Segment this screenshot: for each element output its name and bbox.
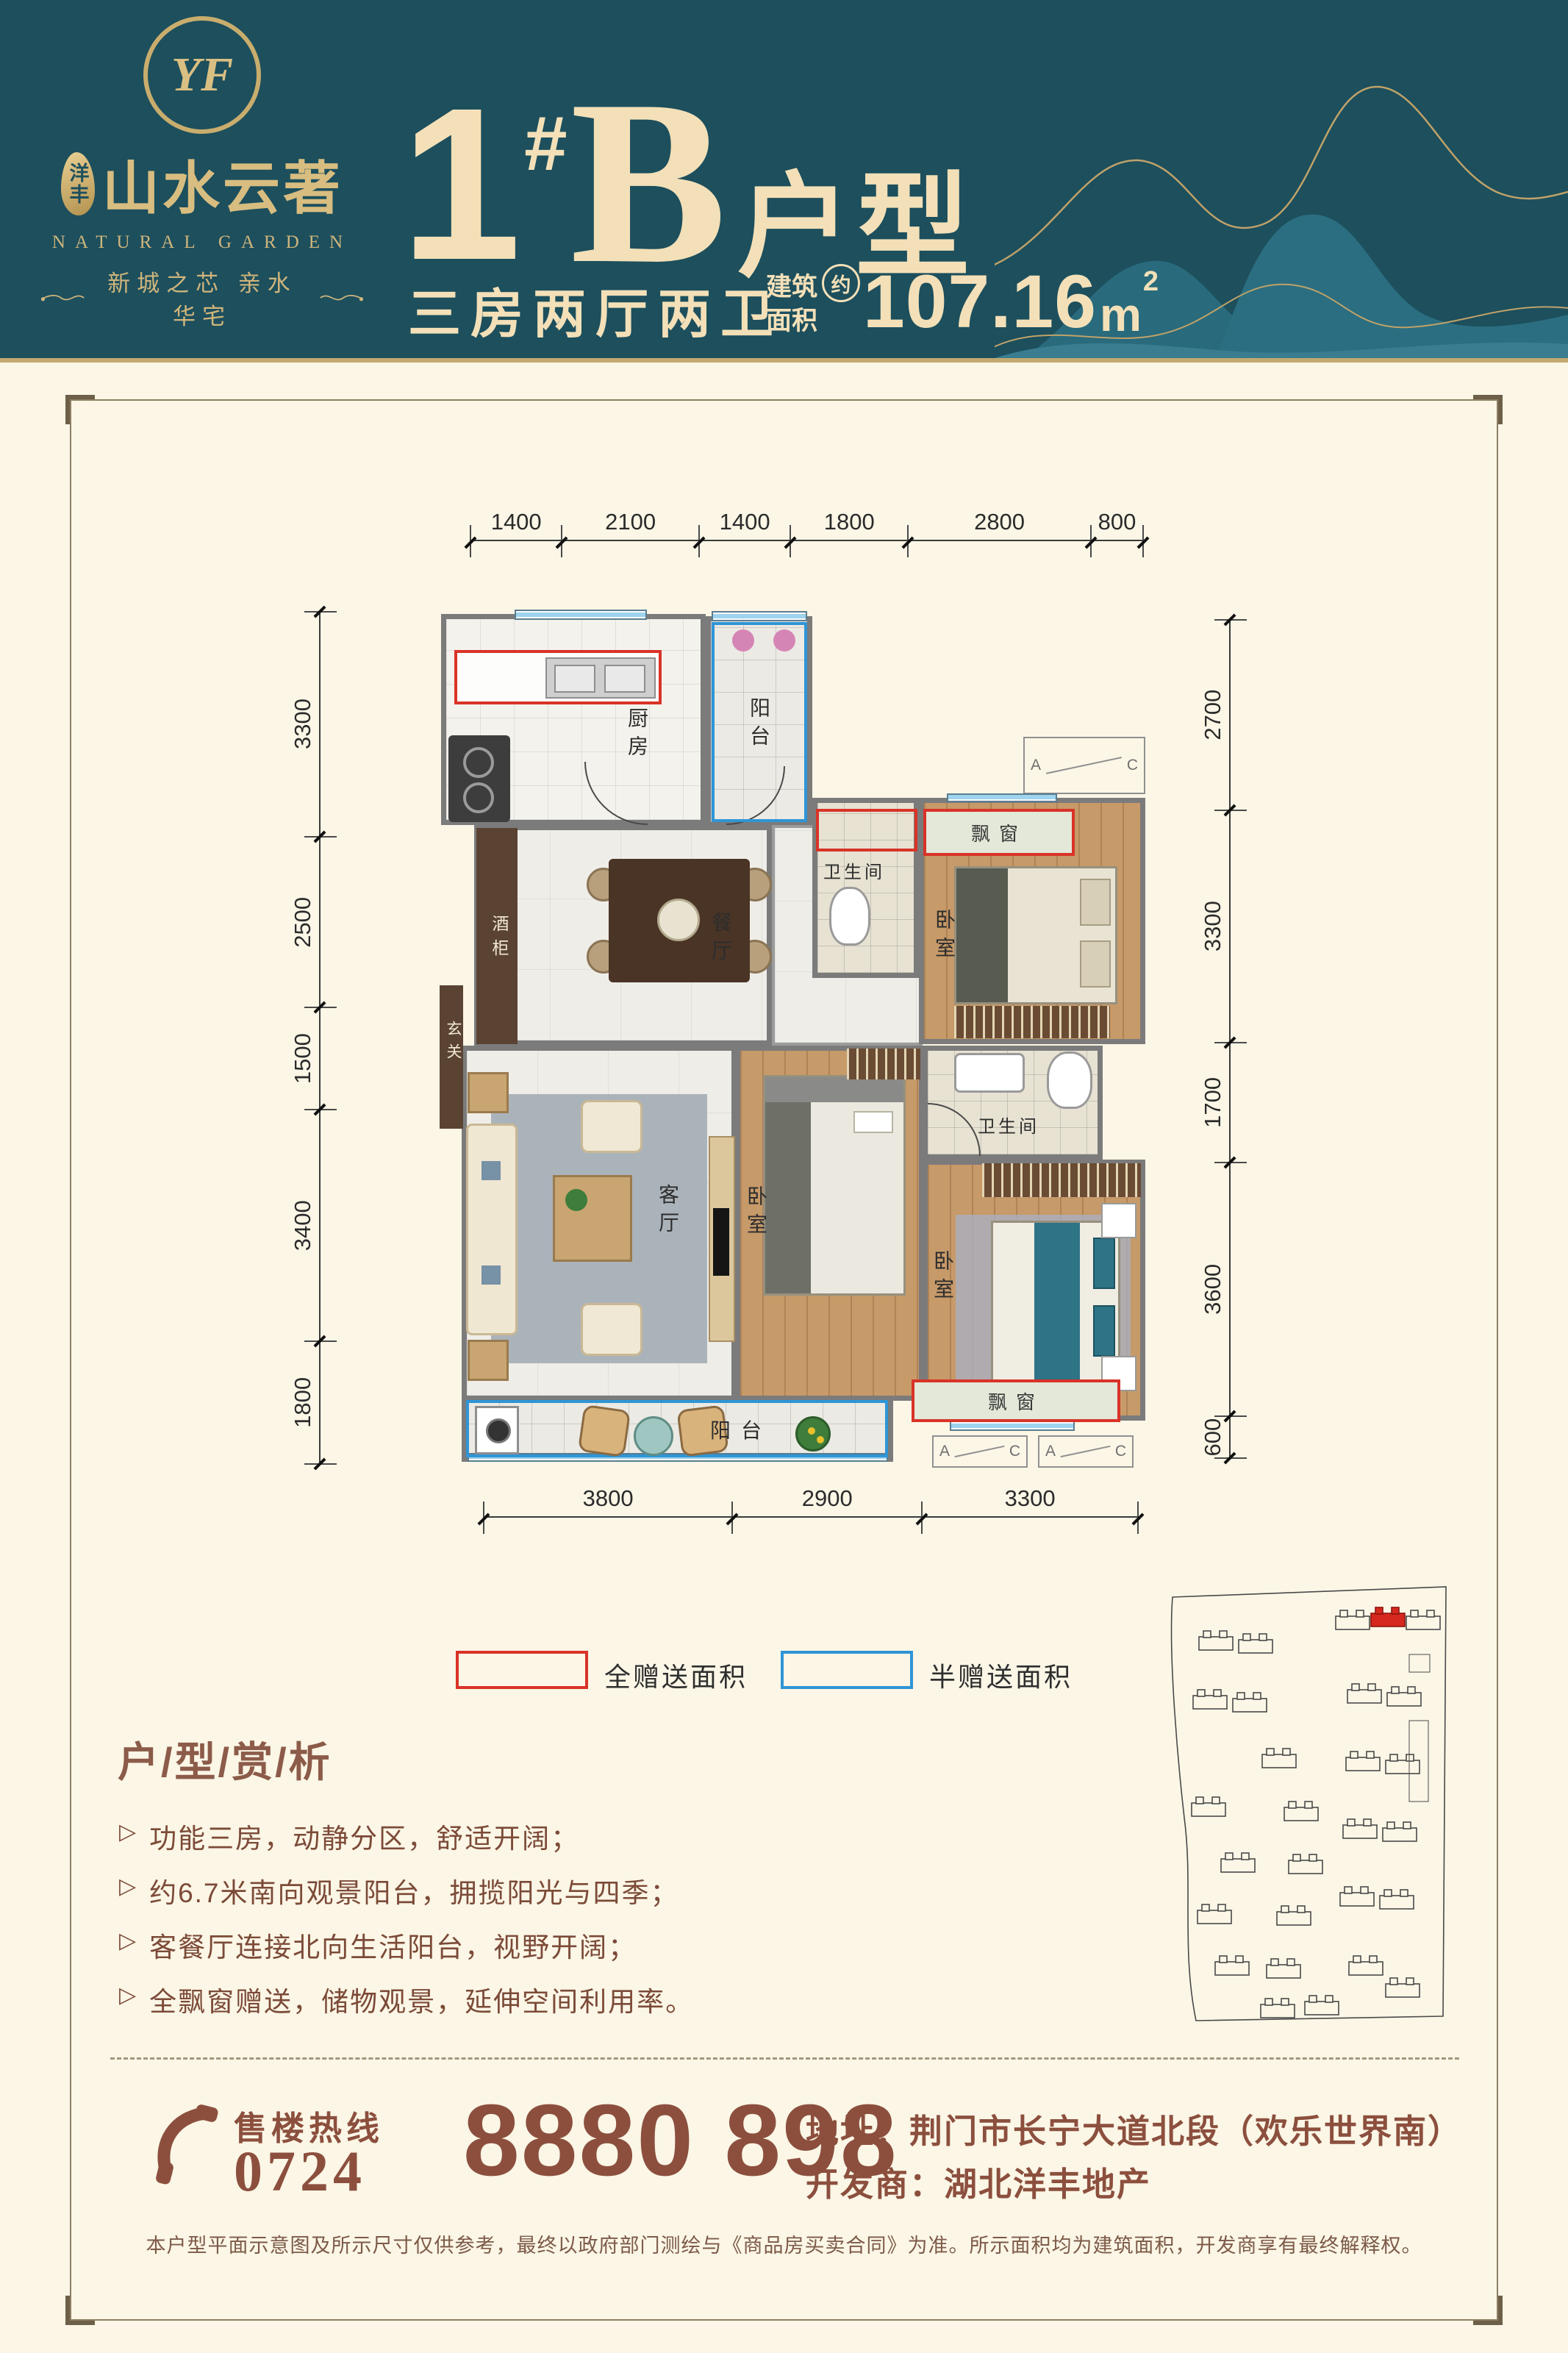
legend-full-gift-swatch	[456, 1651, 588, 1689]
window	[950, 1421, 1075, 1431]
analysis-title: 户/型/赏/析	[118, 1729, 332, 1789]
header-banner: YF 洋丰 山水云著 NATURAL GARDEN 新城之芯 亲水华宅 1 # …	[0, 0, 1568, 363]
address-line: 地址：荆门市长宁大道北段（欢乐世界南）	[806, 2104, 1462, 2152]
area-exponent: 2	[1143, 266, 1159, 298]
gift-area-bath-1	[816, 809, 917, 851]
unit-hash: #	[524, 105, 567, 182]
ac-platform: AC	[1038, 1435, 1134, 1468]
label-bay-window-1: 飘窗	[971, 819, 1027, 846]
dashed-divider	[110, 2057, 1459, 2060]
wardrobe-bedroom-2	[847, 1049, 920, 1079]
bath-1-toilet	[829, 887, 870, 946]
developer-line: 开发商：湖北洋丰地产	[806, 2157, 1151, 2205]
label-bedroom-2: 卧室	[741, 1185, 770, 1241]
analysis-item: ▷ 客餐厅连接北向生活阳台，视野开阔；	[119, 1925, 637, 1965]
gift-area-bay-window-2: 飘窗	[912, 1379, 1120, 1422]
side-table	[468, 1072, 509, 1113]
triangle-bullet-icon: ▷	[119, 1874, 137, 1899]
washing-machine	[475, 1406, 519, 1454]
brand-logo: YF 洋丰 山水云著 NATURAL GARDEN 新城之芯 亲水华宅	[40, 16, 364, 331]
window	[515, 610, 647, 620]
disclaimer-text: 本户型平面示意图及所示尺寸仅供参考，最终以政府部门测绘与《商品房买卖合同》为准。…	[88, 2229, 1480, 2258]
poster-page: YF 洋丰 山水云著 NATURAL GARDEN 新城之芯 亲水华宅 1 # …	[0, 0, 1568, 2353]
address-label: 地址：	[806, 2113, 909, 2150]
label-kitchen: 厨房	[622, 707, 651, 763]
area-block: 建筑 面积 约 107.16 m 2	[766, 259, 1159, 340]
lounge-chair	[578, 1404, 631, 1457]
flower-pot	[732, 629, 754, 651]
label-bedroom-3: 卧室	[928, 1250, 957, 1306]
brand-tagline: 新城之芯 亲水华宅	[40, 265, 364, 331]
area-unit: m	[1100, 288, 1142, 342]
sofa	[466, 1124, 518, 1335]
bath-2-toilet	[1047, 1051, 1092, 1109]
area-label: 建筑 面积	[766, 271, 817, 338]
window	[712, 611, 807, 621]
stove	[448, 735, 510, 822]
phone-icon	[150, 2104, 223, 2185]
hotline-prefix: 0724	[234, 2138, 366, 2204]
flourish-right-icon	[319, 289, 364, 307]
analysis-item: ▷ 约6.7米南向观景阳台，拥揽阳光与四季；	[119, 1871, 679, 1910]
label-bath-2: 卫生间	[978, 1112, 1039, 1138]
dimension-top: 1400 2100 1400 1800 2800 800	[470, 507, 1143, 559]
bed-bedroom-1	[954, 866, 1117, 1004]
dimension-bottom: 3800 2900 3300	[484, 1484, 1138, 1535]
developer-label: 开发商：	[806, 2165, 944, 2203]
label-balcony-south: 阳台	[710, 1415, 772, 1444]
label-bedroom-1: 卧室	[929, 909, 959, 965]
label-wine-cabinet: 酒柜	[487, 915, 512, 963]
layout-subtitle: 三房两厅两卫	[408, 271, 783, 348]
area-value: 107.16	[863, 259, 1097, 345]
window	[947, 793, 1057, 802]
analysis-item-text: 客餐厅连接北向生活阳台，视野开阔；	[149, 1925, 637, 1965]
dimension-right: 2700 3300 1700 3600 600	[1197, 620, 1248, 1458]
developer-value: 湖北洋丰地产	[944, 2165, 1151, 2203]
label-balcony-north: 阳台	[744, 697, 773, 753]
address-value: 荆门市长宁大道北段（欢乐世界南）	[909, 2113, 1462, 2150]
logo-monogram-icon: YF	[143, 16, 261, 134]
label-foyer: 玄关	[442, 1021, 464, 1066]
wardrobe-bedroom-3	[982, 1163, 1141, 1197]
unit-number: 1	[401, 76, 517, 293]
triangle-bullet-icon: ▷	[119, 1928, 137, 1954]
ac-platform: AC	[932, 1435, 1028, 1468]
label-bath-1: 卫生间	[823, 857, 885, 883]
triangle-bullet-icon: ▷	[119, 1819, 137, 1845]
brand-tagline-text: 新城之芯 亲水华宅	[94, 265, 310, 331]
analysis-item: ▷ 全飘窗赠送，储物观景，延伸空间利用率。	[119, 1979, 694, 2019]
tv-console	[709, 1136, 735, 1342]
coffee-table	[553, 1175, 632, 1262]
nightstand	[1101, 1203, 1136, 1238]
armchair	[581, 1303, 642, 1356]
potted-plant	[795, 1416, 831, 1452]
gift-area-bay-window-1: 飘窗	[923, 809, 1075, 856]
area-approx-badge: 约	[822, 264, 860, 302]
side-table	[468, 1340, 509, 1381]
analysis-item-text: 功能三房，动静分区，舒适开阔；	[149, 1816, 579, 1856]
analysis-item-text: 约6.7米南向观景阳台，拥揽阳光与四季；	[149, 1871, 679, 1910]
analysis-item-text: 全飘窗赠送，储物观景，延伸空间利用率。	[149, 1979, 694, 2019]
legend-half-gift-swatch	[781, 1651, 913, 1689]
brand-name-en: NATURAL GARDEN	[40, 232, 364, 253]
label-bay-window-2: 飘窗	[988, 1388, 1044, 1415]
logo-seal: 洋丰	[61, 152, 95, 215]
wardrobe-bedroom-1	[954, 1006, 1110, 1038]
site-plan-map	[1150, 1566, 1467, 2037]
flower-pot	[773, 629, 795, 651]
bath-2-sink	[954, 1053, 1025, 1093]
ac-platform: AC	[1023, 737, 1145, 794]
label-dining: 餐厅	[706, 912, 735, 968]
kitchen-sink	[545, 657, 656, 699]
brand-name: 山水云著	[102, 143, 343, 225]
legend-full-gift-label: 全赠送面积	[604, 1656, 748, 1694]
gift-area-kitchen-counter	[454, 650, 662, 704]
dimension-left: 3300 2500 1500 3400 1800	[287, 612, 338, 1464]
unit-letter: B	[570, 65, 726, 300]
bed-bedroom-2	[763, 1075, 906, 1296]
label-living: 客厅	[653, 1184, 682, 1240]
balcony-table	[634, 1416, 673, 1456]
area-label-line1: 建筑	[766, 271, 817, 304]
legend-half-gift-label: 半赠送面积	[929, 1656, 1073, 1694]
area-label-line2: 面积	[766, 304, 817, 338]
flourish-left-icon	[40, 289, 85, 307]
armchair	[581, 1100, 642, 1153]
triangle-bullet-icon: ▷	[119, 1982, 137, 2008]
analysis-item: ▷ 功能三房，动静分区，舒适开阔；	[119, 1816, 579, 1856]
